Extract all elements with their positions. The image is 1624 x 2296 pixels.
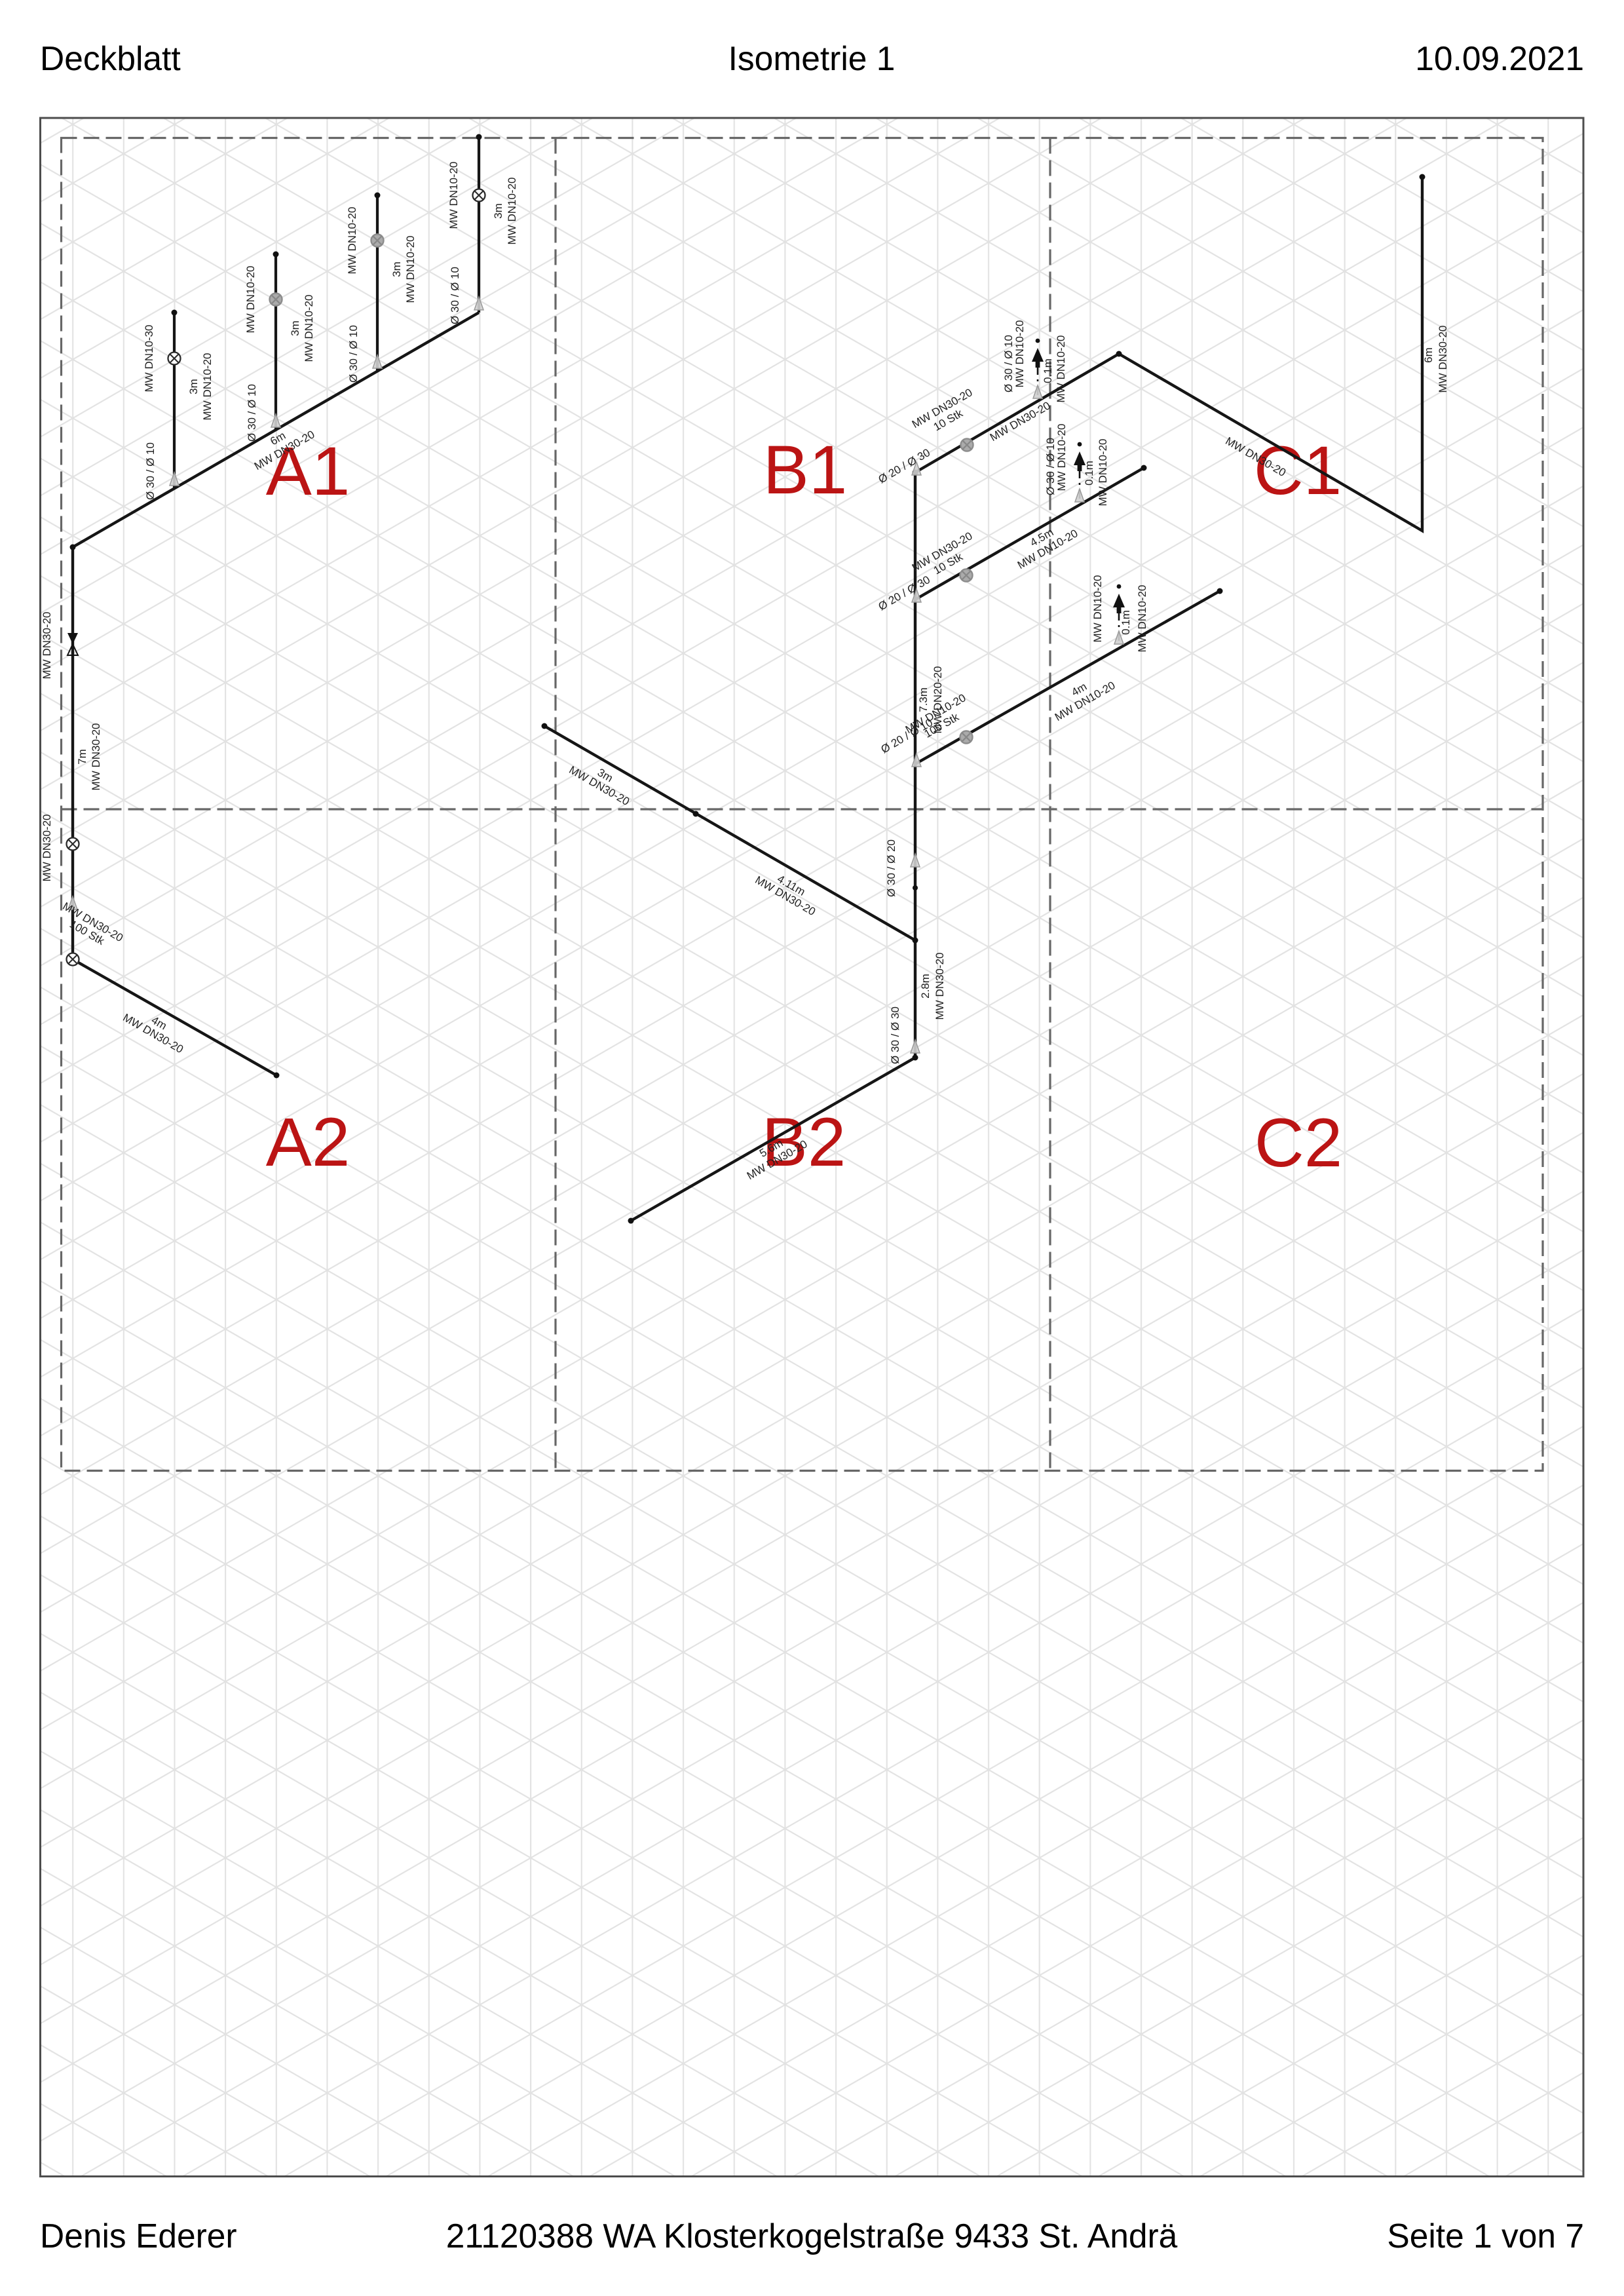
svg-text:Ø 30 / Ø 10: Ø 30 / Ø 10 — [246, 384, 258, 442]
svg-text:MW DN10-20: MW DN10-20 — [346, 207, 358, 275]
svg-text:B1: B1 — [763, 432, 847, 508]
svg-text:Ø 30 / Ø 10: Ø 30 / Ø 10 — [449, 267, 461, 324]
svg-text:MW DN10-20: MW DN10-20 — [1097, 439, 1109, 507]
svg-text:0.1m: 0.1m — [1042, 358, 1054, 383]
svg-text:6m: 6m — [1422, 347, 1435, 363]
svg-text:Ø 30 / Ø 30: Ø 30 / Ø 30 — [889, 1006, 901, 1064]
svg-text:MW DN10-20: MW DN10-20 — [244, 266, 257, 334]
svg-text:MW DN10-20: MW DN10-20 — [1013, 320, 1026, 388]
svg-text:MW DN10-20: MW DN10-20 — [1055, 424, 1068, 491]
svg-text:7.3m: 7.3m — [917, 687, 930, 712]
svg-text:MW DN10-20: MW DN10-20 — [1055, 335, 1067, 403]
svg-text:C2: C2 — [1255, 1105, 1342, 1181]
svg-text:MW DN10-20: MW DN10-20 — [404, 236, 417, 303]
svg-text:MW DN10-20: MW DN10-20 — [1091, 575, 1104, 643]
svg-text:21120388 WA Klosterkogelstraße: 21120388 WA Klosterkogelstraße 9433 St. … — [446, 2217, 1178, 2255]
svg-text:MW DN20-20: MW DN20-20 — [932, 666, 944, 734]
svg-text:0.1m: 0.1m — [1120, 610, 1132, 635]
svg-text:A2: A2 — [266, 1104, 350, 1181]
svg-text:MW DN30-20: MW DN30-20 — [90, 723, 102, 791]
svg-text:Ø 30 / Ø 10: Ø 30 / Ø 10 — [144, 442, 157, 500]
svg-text:3m: 3m — [390, 261, 403, 277]
svg-text:7m: 7m — [76, 749, 88, 765]
svg-text:MW DN30-20: MW DN30-20 — [934, 953, 946, 1020]
svg-text:Ø 30 / Ø 10: Ø 30 / Ø 10 — [347, 325, 360, 383]
svg-text:C1: C1 — [1254, 432, 1342, 509]
svg-text:Denis Ederer: Denis Ederer — [40, 2217, 237, 2255]
svg-text:MW DN10-20: MW DN10-20 — [201, 353, 214, 421]
svg-text:3m: 3m — [289, 320, 301, 336]
svg-text:MW DN30-20: MW DN30-20 — [41, 612, 53, 679]
svg-text:2.8m: 2.8m — [919, 974, 932, 999]
svg-text:10.09.2021: 10.09.2021 — [1415, 39, 1584, 77]
svg-text:MW DN10-20: MW DN10-20 — [1136, 585, 1148, 653]
svg-text:Seite 1 von 7: Seite 1 von 7 — [1387, 2217, 1584, 2255]
svg-text:MW DN10-20: MW DN10-20 — [506, 178, 518, 245]
svg-text:MW DN10-30: MW DN10-30 — [143, 325, 155, 392]
svg-text:0.1m: 0.1m — [1083, 461, 1095, 486]
svg-text:Deckblatt: Deckblatt — [40, 39, 181, 77]
svg-text:Isometrie 1: Isometrie 1 — [728, 39, 896, 77]
svg-text:3m: 3m — [492, 203, 504, 219]
svg-text:Ø 30 / Ø 20: Ø 30 / Ø 20 — [885, 839, 897, 897]
svg-text:MW DN30-20: MW DN30-20 — [1437, 326, 1449, 393]
svg-text:MW DN10-20: MW DN10-20 — [447, 162, 460, 229]
svg-text:MW DN10-20: MW DN10-20 — [303, 295, 315, 362]
svg-text:MW DN30-20: MW DN30-20 — [41, 814, 53, 882]
svg-text:3m: 3m — [187, 379, 200, 394]
